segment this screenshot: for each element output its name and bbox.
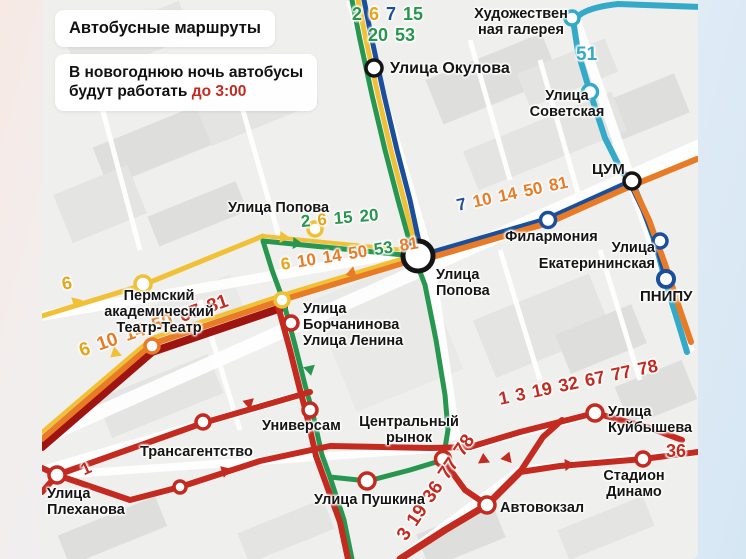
route-number: 15	[333, 208, 354, 230]
label-pnipu: ПНИПУ	[640, 289, 693, 306]
route-number: 81	[547, 173, 570, 196]
label-universam: Универсам	[262, 418, 341, 434]
map-title-panel: Автобусные маршруты	[55, 10, 275, 47]
route-number: 51	[576, 44, 597, 66]
route-number: 53	[373, 237, 395, 260]
stop-avtovokzal[interactable]	[479, 497, 495, 513]
stop-pnipu[interactable]	[658, 271, 674, 287]
notice-line2: будут работать	[69, 83, 187, 100]
route-number-36: 36	[666, 441, 686, 462]
arrow-red-right	[564, 458, 575, 471]
route-number: 14	[321, 246, 343, 269]
label-rynok: Центральный рынок	[353, 414, 465, 446]
label-tsum: ЦУМ	[592, 162, 625, 179]
stop-filarmonia[interactable]	[541, 213, 556, 228]
arrow-red-up-2	[500, 450, 515, 464]
label-gallery: Художествен ная галерея	[455, 6, 587, 38]
route-number: 19	[530, 378, 554, 403]
route-number: 53	[395, 25, 415, 46]
stop-borchaninova-top[interactable]	[275, 293, 289, 307]
stop-kuibysheva[interactable]	[587, 405, 603, 421]
route-number: 78	[636, 356, 660, 381]
map-title: Автобусные маршруты	[69, 19, 261, 38]
route-number: 15	[403, 4, 423, 25]
stop-pushkina[interactable]	[359, 473, 375, 489]
route-number: 6	[369, 4, 379, 25]
arrow-red-up-1	[477, 453, 490, 464]
route-number: 20	[359, 205, 380, 227]
stop-low-west[interactable]	[174, 481, 186, 493]
label-kuibysheva: Улица Куйбышева	[608, 404, 692, 436]
label-plekhanova: Улица Плеханова	[47, 486, 125, 518]
route-number: 36	[666, 441, 686, 462]
route-number: 10	[296, 250, 318, 273]
route-number: 32	[557, 372, 581, 397]
route-number: 50	[347, 241, 369, 264]
route-number: 81	[398, 233, 420, 256]
route-number: 2	[352, 4, 362, 25]
route-number-51: 51	[576, 44, 597, 66]
stop-dinamo[interactable]	[636, 452, 650, 466]
route-number: 14	[496, 183, 519, 206]
stop-okulova[interactable]	[366, 60, 382, 76]
route-number: 77	[609, 361, 633, 386]
notice-line1: В новогоднюю ночь автобусы	[69, 63, 303, 82]
route-number: 10	[471, 189, 494, 212]
route-number: 20	[368, 25, 388, 46]
label-pushkina: Улица Пушкина	[314, 492, 425, 508]
route-numbers-okulova-row2: 20 53	[368, 25, 415, 46]
stop-borchaninova[interactable]	[284, 316, 298, 330]
label-ekaterininskaya: Улица Екатерининская	[527, 240, 655, 272]
stop-tsum[interactable]	[624, 173, 640, 189]
arrow-green-borchaninova	[303, 365, 317, 377]
label-teatr: Пермский академический Театр-Театр	[93, 288, 225, 337]
label-sovetskaya: Улица Советская	[522, 88, 612, 120]
route-number: 7	[386, 4, 396, 25]
stop-lenina[interactable]	[145, 339, 159, 353]
screenshot-root: { "palette": { "green": "#27964e", "yell…	[0, 0, 746, 559]
route-number: 67	[583, 367, 607, 392]
notice-highlight: до 3:00	[192, 83, 247, 100]
label-borchaninova: Улица Борчанинова Улица Ленина	[303, 301, 403, 350]
label-transagentstvo: Трансагентство	[140, 444, 253, 460]
label-avtovokzal: Автовокзал	[500, 500, 584, 516]
route-numbers-okulova-row1: 2 6 7 15	[352, 4, 423, 25]
label-popova-junction: Улица Попова	[436, 267, 490, 299]
stop-ekaterininskaya[interactable]	[653, 234, 667, 248]
route-number: 3	[513, 384, 527, 407]
notice-panel: В новогоднюю ночь автобусы будут работат…	[55, 54, 317, 111]
label-okulova: Улица Окулова	[390, 60, 510, 78]
stop-universam[interactable]	[303, 403, 317, 417]
route-number: 50	[522, 178, 545, 201]
label-stadion-dinamo: Стадион Динамо	[596, 468, 672, 500]
label-popova-west: Улица Попова	[228, 200, 329, 216]
route-number: 6	[279, 254, 291, 275]
stop-plekhanova[interactable]	[49, 467, 65, 483]
stop-transagentstvo[interactable]	[196, 415, 210, 429]
